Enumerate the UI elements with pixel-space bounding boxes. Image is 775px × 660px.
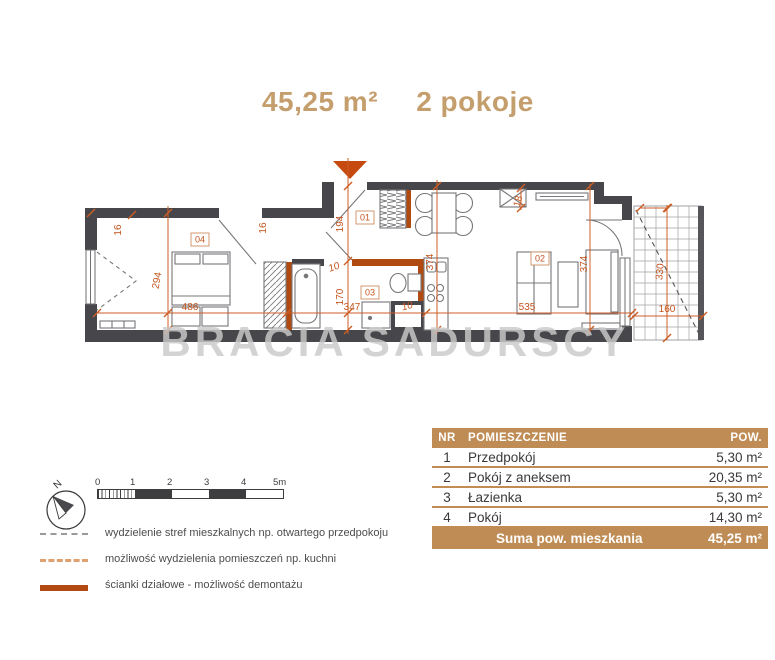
entrance-arrow-icon — [333, 161, 367, 179]
table-row: 1 Przedpokój 5,30 m² — [432, 448, 768, 468]
watermark: BRACIA SADURSCY — [160, 318, 629, 365]
dashed-gray-line-icon — [40, 533, 88, 535]
scale-label: 0 — [95, 477, 100, 488]
table-footer: Suma pow. mieszkania 45,25 m² — [432, 528, 768, 549]
table-row: 3 Łazienka 5,30 m² — [432, 488, 768, 508]
svg-text:04: 04 — [195, 235, 205, 245]
legend-item-kitchen-separation: możliwość wydzielenia pomieszczeń np. ku… — [40, 550, 440, 576]
dim-374-kitchen: 374 — [425, 253, 436, 270]
toilet-bowl — [390, 274, 406, 293]
coffee-table — [558, 262, 578, 307]
dim-16-left: 16 — [113, 224, 124, 236]
room-label-04: 04 — [191, 233, 209, 246]
dim-486: 486 — [182, 302, 199, 313]
window-swing-dashes — [97, 252, 136, 310]
dim-535: 535 — [519, 302, 536, 313]
dim-160: 160 — [659, 304, 676, 315]
wall-right-top — [622, 196, 632, 220]
dim-294: 294 — [151, 271, 165, 290]
legend: wydzielenie stref mieszkalnych np. otwar… — [40, 524, 440, 602]
room-label-03: 03 — [361, 286, 379, 299]
legend-item-zones: wydzielenie stref mieszkalnych np. otwar… — [40, 524, 440, 550]
armchair-back — [611, 252, 618, 312]
burner — [437, 285, 444, 292]
burner — [428, 295, 435, 302]
dim-194: 194 — [335, 215, 346, 232]
svg-text:01: 01 — [360, 213, 370, 223]
dim-330: 330 — [654, 263, 666, 281]
floorplan-page: 45,25 m² 2 pokoje — [0, 0, 775, 660]
partition-bath-top — [352, 259, 424, 266]
legend-item-partitions: ścianki działowe - możliwość demontażu — [40, 576, 440, 602]
scale-bar-segments — [97, 489, 284, 499]
table-row: 4 Pokój 14,30 m² — [432, 508, 768, 528]
closet-hatched — [380, 190, 406, 228]
wall-hall-top — [367, 182, 600, 190]
dim-347: 347 — [344, 302, 361, 313]
room-label-02: 02 — [531, 252, 549, 265]
table-row: 2 Pokój z aneksem 20,35 m² — [432, 468, 768, 488]
scale-label: 5m — [273, 477, 286, 488]
compass-n-label: N — [52, 478, 65, 491]
room-labels: 04 01 03 02 — [191, 211, 549, 299]
dim-16-door: 16 — [258, 222, 269, 234]
pillow — [203, 254, 228, 264]
sink-basin — [437, 262, 446, 272]
balcony — [634, 206, 704, 340]
radiator — [100, 321, 135, 328]
pillow — [175, 254, 200, 264]
scale-bar: 0 1 2 3 4 5m — [95, 477, 295, 501]
svg-text:03: 03 — [365, 288, 375, 298]
solid-orange-line-icon — [40, 585, 88, 591]
wall-step — [322, 182, 334, 218]
wall-bedroom-top — [85, 208, 325, 218]
scale-label: 2 — [167, 477, 172, 488]
toilet-tank — [408, 274, 421, 291]
scale-label: 4 — [241, 477, 246, 488]
scale-label: 3 — [204, 477, 209, 488]
table-header: NR POMIESZCZENIE POW. — [432, 428, 768, 448]
partition-closet-edge — [406, 190, 411, 228]
rooms-table: NR POMIESZCZENIE POW. 1 Przedpokój 5,30 … — [432, 428, 768, 549]
dim-374-right: 374 — [579, 255, 590, 272]
room-label-01: 01 — [356, 211, 374, 224]
burner — [437, 295, 444, 302]
scale-label: 1 — [130, 477, 135, 488]
dashed-orange-line-icon — [40, 559, 88, 562]
dim-10-a: 10 — [327, 260, 342, 274]
dining-table — [432, 193, 456, 233]
svg-text:02: 02 — [535, 254, 545, 264]
burner — [428, 285, 435, 292]
